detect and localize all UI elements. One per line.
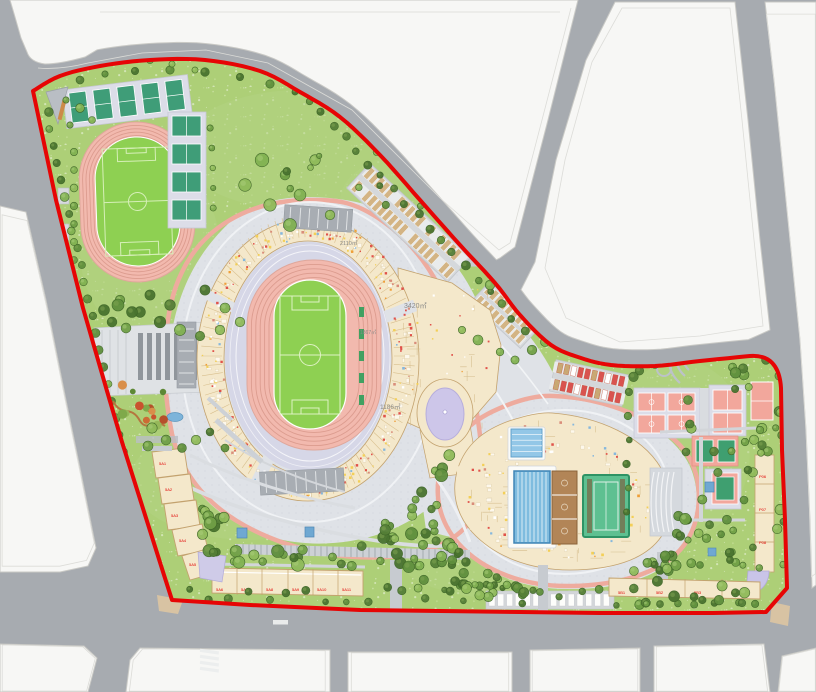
svg-text:5A5: 5A5 (189, 562, 197, 567)
svg-text:5A9: 5A9 (292, 587, 300, 592)
svg-text:P07: P07 (759, 507, 767, 512)
svg-text:P06: P06 (759, 474, 767, 479)
svg-text:5B1: 5B1 (618, 590, 626, 595)
svg-text:5A6: 5A6 (216, 587, 224, 592)
svg-text:P08: P08 (759, 540, 767, 545)
svg-text:5A8: 5A8 (266, 587, 274, 592)
svg-text:5A10: 5A10 (317, 587, 327, 592)
svg-text:5A11: 5A11 (342, 587, 352, 592)
svg-text:1186㎡: 1186㎡ (380, 402, 401, 411)
svg-text:3420㎡: 3420㎡ (404, 302, 427, 310)
svg-text:5A3: 5A3 (171, 513, 179, 518)
svg-text:5A1: 5A1 (159, 461, 167, 466)
svg-text:1867㎡: 1867㎡ (360, 329, 376, 336)
svg-text:5A4: 5A4 (179, 538, 187, 543)
svg-text:5B2: 5B2 (656, 590, 664, 595)
svg-text:2110㎡: 2110㎡ (340, 239, 358, 247)
svg-text:5A2: 5A2 (165, 487, 173, 492)
